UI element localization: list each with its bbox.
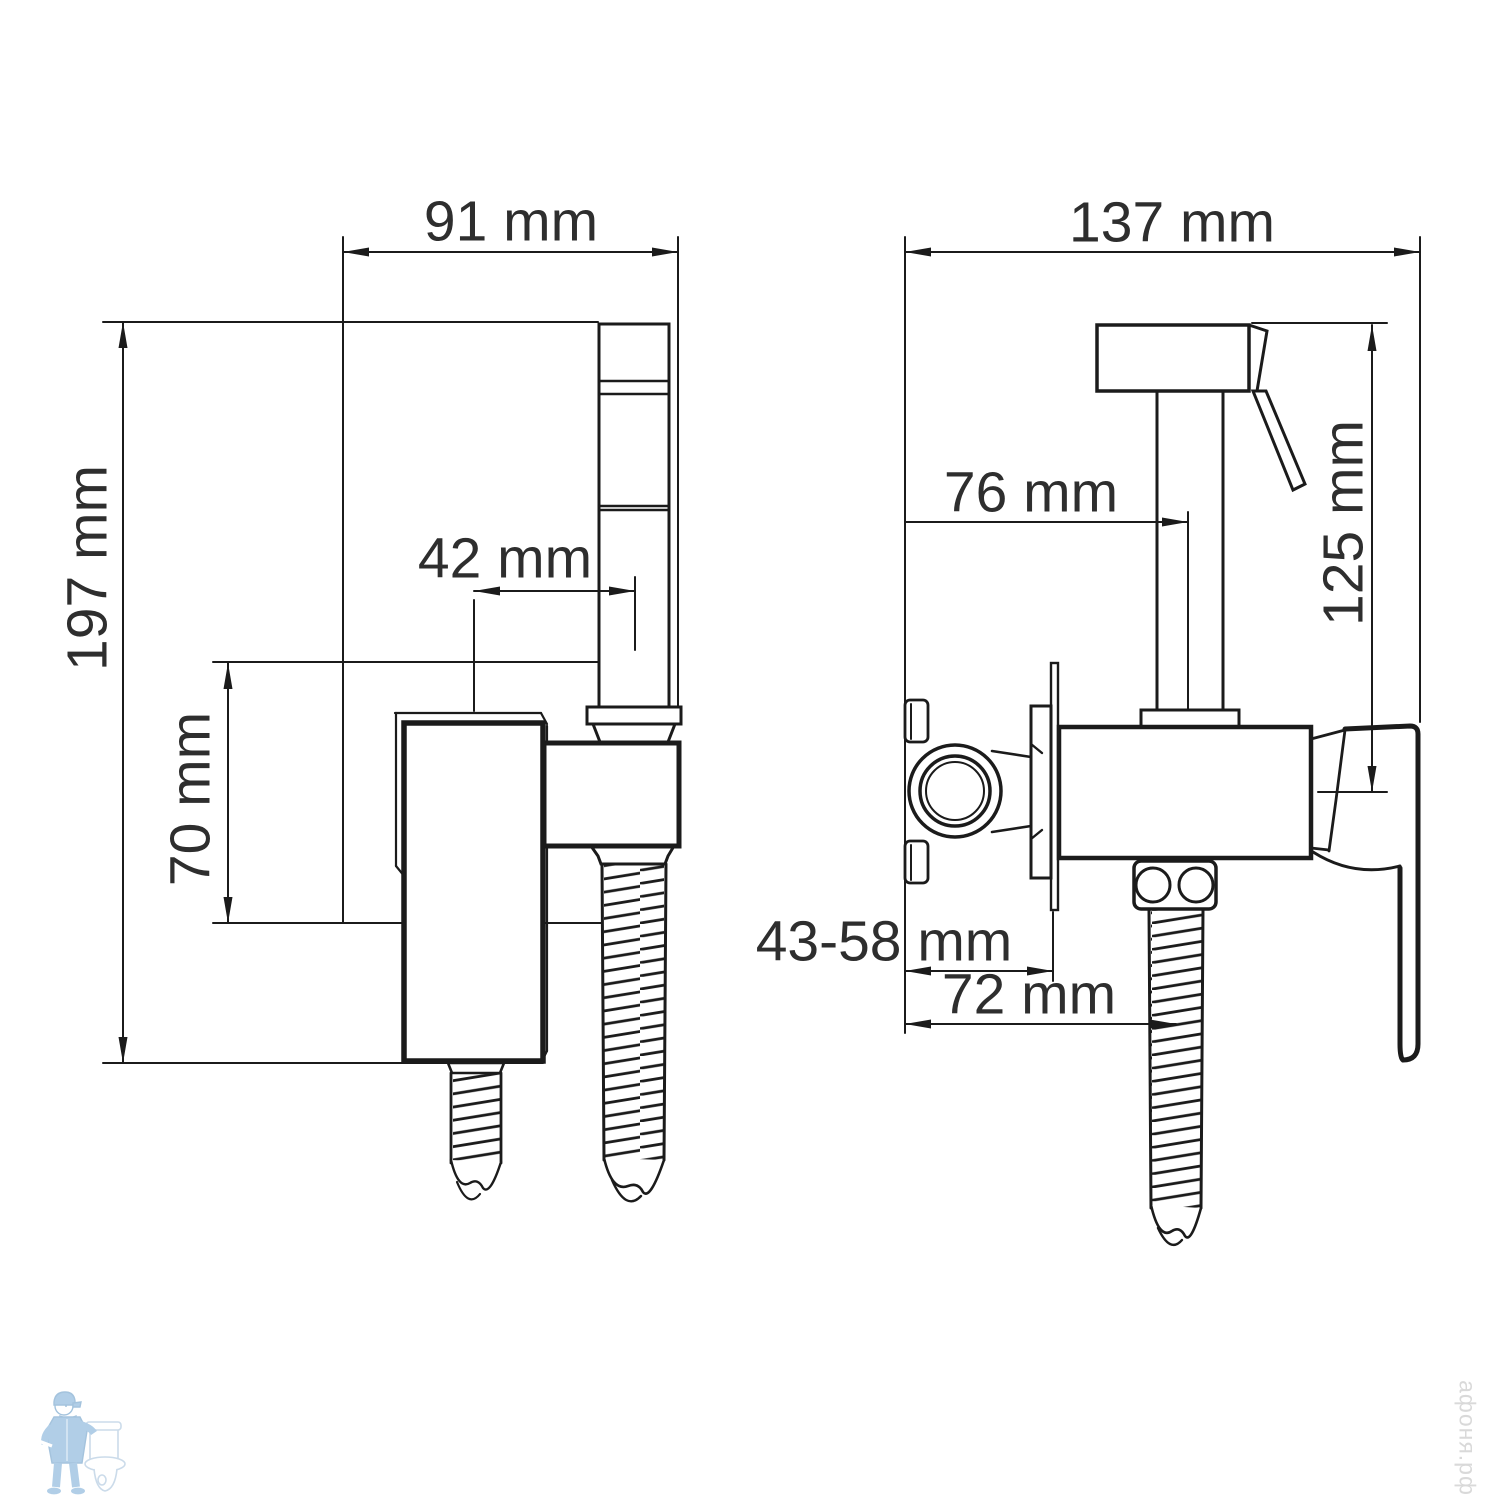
side-sprayer-head: [1097, 325, 1305, 490]
dim-label-side-width: 137 mm: [1069, 195, 1275, 252]
dim-label-side-spout-reach: 76 mm: [944, 465, 1118, 522]
side-sprayer-lever: [1253, 391, 1305, 490]
side-sprayer-tube: [1141, 391, 1239, 727]
side-rough-in-valve: [905, 700, 1042, 883]
front-valve-body: [544, 743, 679, 846]
side-view: [905, 237, 1420, 1245]
side-valve-body: [1059, 727, 1311, 858]
front-hose-right: [602, 864, 666, 1201]
front-wall-plate: [395, 713, 547, 1061]
dim-label-side-hose-offset: 72 mm: [942, 967, 1116, 1024]
front-dimension-lines: [123, 252, 678, 1063]
dimension-drawing: [0, 0, 1500, 1500]
side-hose: [1149, 909, 1203, 1245]
store-watermark: афоня.рф: [1454, 1380, 1481, 1496]
side-mixer-handle: [1311, 726, 1418, 1060]
front-hose-left: [448, 1063, 504, 1199]
front-extension-lines: [103, 237, 678, 1063]
dim-label-front-plate-height: 70 mm: [163, 712, 220, 886]
dim-label-front-spout-offset: 42 mm: [418, 531, 592, 588]
front-sprayer-tube: [587, 324, 681, 742]
side-hose-connection: [1134, 861, 1216, 909]
side-wall-plate: [1031, 663, 1058, 910]
plumber-logo-icon: [30, 1383, 180, 1500]
technical-drawing-page: 91 mm 197 mm 42 mm 70 mm 137 mm 76 mm 12…: [0, 0, 1500, 1500]
dim-label-front-width: 91 mm: [424, 194, 598, 251]
dim-label-side-sprayer-height: 125 mm: [1316, 420, 1373, 626]
front-hose-nut: [591, 846, 674, 864]
dim-label-front-height: 197 mm: [60, 465, 117, 671]
